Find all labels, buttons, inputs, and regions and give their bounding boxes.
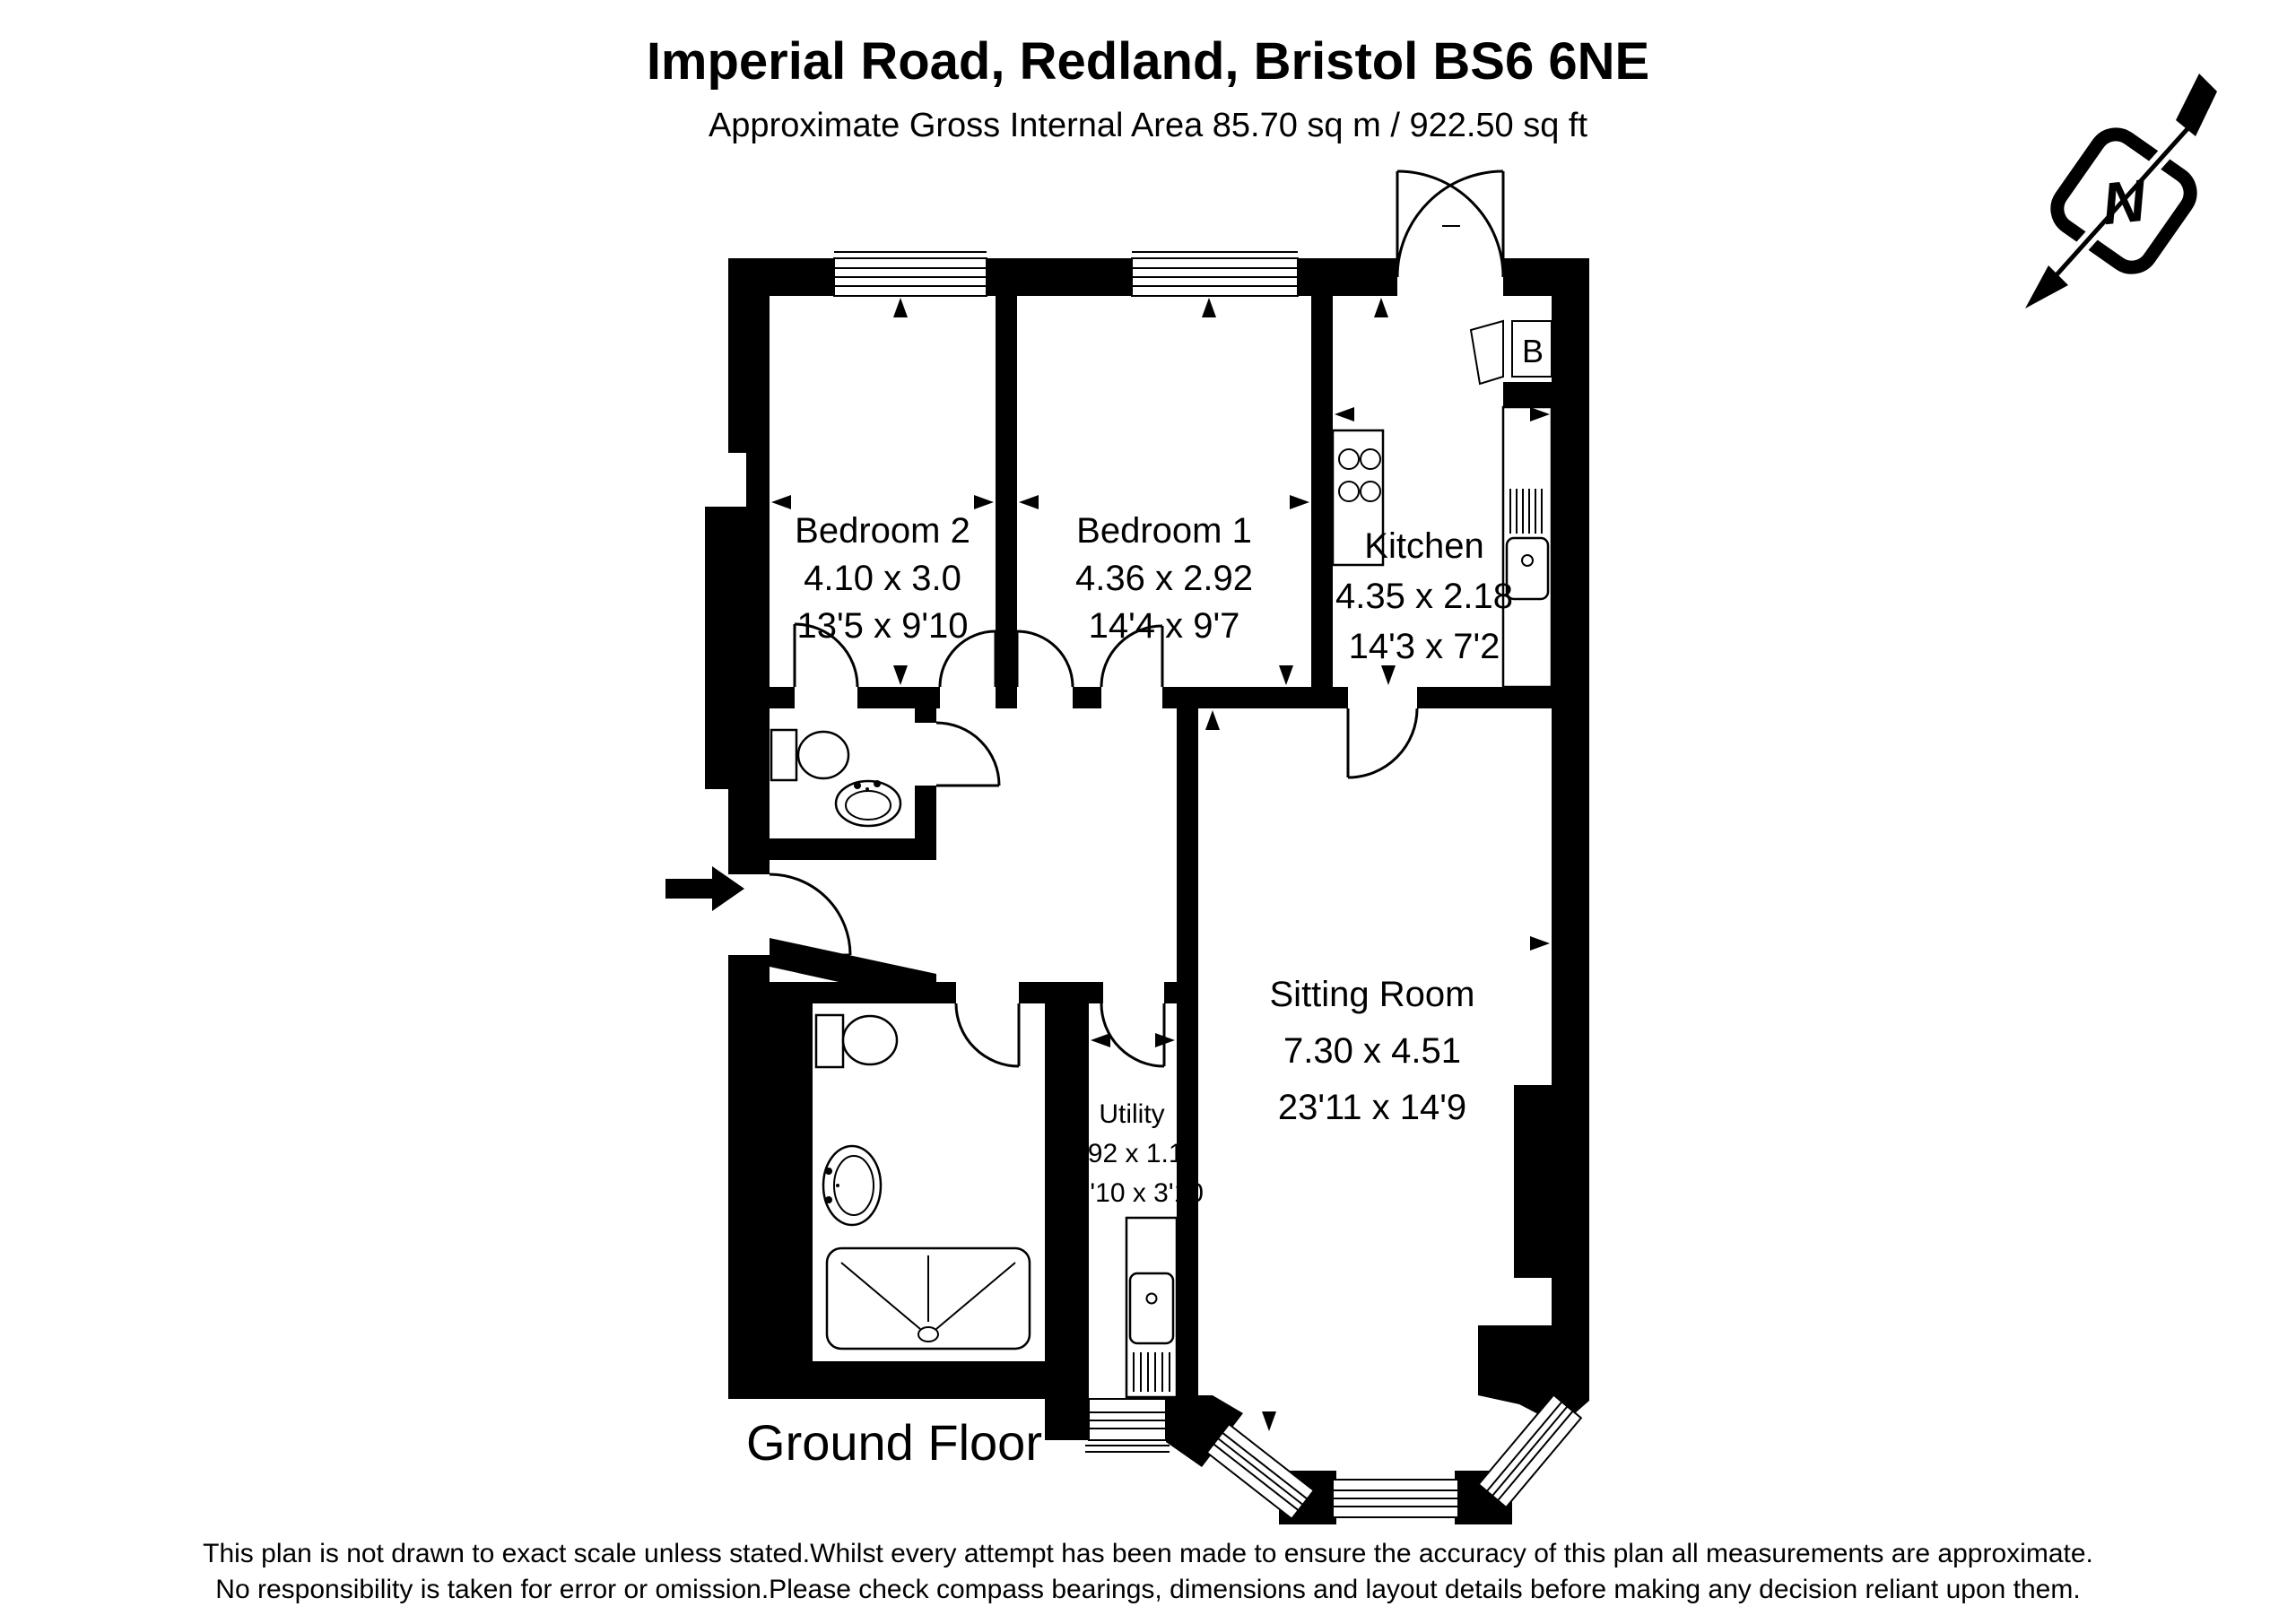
kitchen-french-doors <box>1397 171 1503 277</box>
floorplan-page: Imperial Road, Redland, Bristol BS6 6NE … <box>0 0 2296 1624</box>
room-dim-metric: 4.36 x 2.92 <box>1075 559 1253 598</box>
page-title: Imperial Road, Redland, Bristol BS6 6NE <box>647 32 1649 91</box>
arrow-left-icon <box>1335 407 1354 421</box>
room-dim-imperial: 14'3 x 7'2 <box>1349 627 1500 666</box>
bathroom-door <box>956 1003 1019 1066</box>
room-dim-metric: 7.30 x 4.51 <box>1283 1031 1461 1071</box>
disclaimer-line2: No responsibility is taken for error or … <box>215 1575 2080 1604</box>
utility-door <box>1101 1003 1164 1066</box>
room-dim-imperial: 12'10 x 3'10 <box>1060 1178 1204 1208</box>
wc-basin <box>836 780 900 826</box>
page-subtitle: Approximate Gross Internal Area 85.70 sq… <box>709 107 1588 144</box>
bedroom2-window <box>834 252 987 296</box>
north-label: N <box>2100 167 2150 238</box>
room-dim-metric: 4.35 x 2.18 <box>1335 577 1513 616</box>
arrow-left-icon <box>771 495 791 509</box>
wc-toilet <box>771 730 848 780</box>
floorplan-canvas: Imperial Road, Redland, Bristol BS6 6NE … <box>0 0 2296 1624</box>
north-compass-icon: N <box>2025 74 2217 308</box>
room-dim-imperial: 14'4 x 9'7 <box>1089 606 1240 646</box>
sitting-room-door <box>1348 708 1417 777</box>
room-name: Sitting Room <box>1270 975 1475 1014</box>
room-name: Bedroom 1 <box>1076 511 1252 551</box>
bay-window-centre <box>1333 1480 1458 1517</box>
room-dim-imperial: 23'11 x 14'9 <box>1278 1088 1466 1127</box>
room-dim-imperial: 13'5 x 9'10 <box>797 606 969 646</box>
arrow-down-icon <box>1381 665 1396 685</box>
boiler-label: B <box>1522 333 1544 369</box>
arrow-up-icon <box>893 298 908 317</box>
shower-tray <box>827 1248 1030 1349</box>
room-name: Bedroom 2 <box>795 511 970 551</box>
arrow-right-icon <box>1290 495 1309 509</box>
kitchen-sink <box>1503 407 1552 687</box>
arrow-up-icon <box>1374 298 1388 317</box>
room-dim-metric: 3.92 x 1.16 <box>1065 1139 1198 1168</box>
arrow-left-icon <box>1091 1033 1110 1047</box>
room-name: Utility <box>1099 1099 1164 1129</box>
arrow-down-icon <box>1279 665 1293 685</box>
bedroom1-window <box>1132 252 1298 296</box>
room-name: Kitchen <box>1364 526 1483 566</box>
disclaimer-line1: This plan is not drawn to exact scale un… <box>203 1539 2093 1568</box>
utility-sink <box>1126 1218 1177 1397</box>
sitting-room-label: Sitting Room 7.30 x 4.51 23'11 x 14'9 <box>1270 975 1475 1127</box>
boiler-cupboard: B <box>1471 314 1552 407</box>
arrow-up-icon <box>1205 710 1220 730</box>
bedroom1-label: Bedroom 1 4.36 x 2.92 14'4 x 9'7 <box>1075 511 1253 646</box>
arrow-up-icon <box>1202 298 1216 317</box>
arrow-right-icon <box>1530 936 1550 951</box>
floor-label: Ground Floor <box>746 1414 1042 1471</box>
bay-window-right <box>1479 1395 1581 1507</box>
bedroom1-door <box>1017 631 1073 687</box>
utility-window <box>1085 1399 1170 1452</box>
bathroom-toilet <box>816 1015 897 1067</box>
arrow-down-icon <box>1262 1411 1276 1431</box>
bedroom2-label: Bedroom 2 4.10 x 3.0 13'5 x 9'10 <box>795 511 970 646</box>
room-dim-metric: 4.10 x 3.0 <box>804 559 961 598</box>
arrow-down-icon <box>893 665 908 685</box>
arrow-left-icon <box>1019 495 1039 509</box>
arrow-right-icon <box>974 495 994 509</box>
bathroom-basin <box>823 1146 881 1225</box>
wc-door <box>936 723 999 786</box>
